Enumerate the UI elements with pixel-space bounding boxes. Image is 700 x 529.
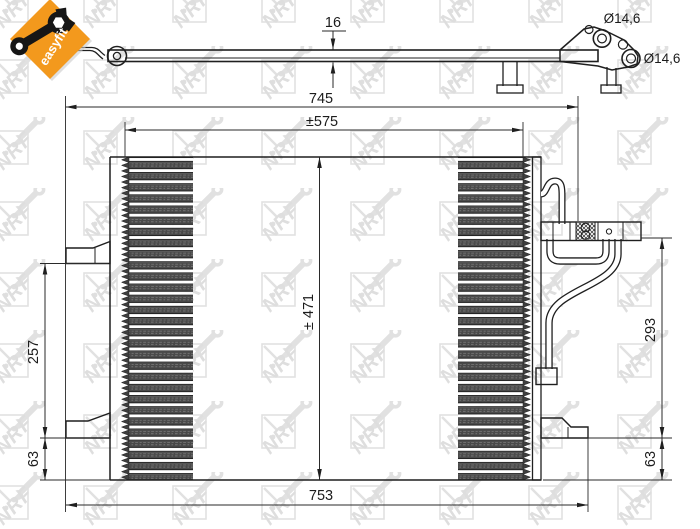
dim-label-width-overall: 745 (309, 91, 333, 107)
service-valve (577, 223, 595, 240)
dim-label-left-bottom-offset: 63 (26, 451, 42, 467)
dim-label-left-bracket-span: 257 (26, 340, 42, 364)
dim-label-width-core: ±575 (306, 114, 338, 130)
dim-label-depth: 16 (325, 15, 341, 31)
dim-label-width-bottom: 753 (309, 488, 333, 504)
core-right-hatch (458, 157, 523, 480)
dim-label-height-core: ± 471 (301, 294, 317, 330)
core-left-hatch (129, 157, 193, 480)
dim-label-port-top: Ø14,6 (604, 11, 641, 26)
technical-drawing-page: NRF (0, 0, 700, 529)
dim-label-right-bottom-offset: 63 (643, 451, 659, 467)
dim-label-port-right: Ø14,6 (644, 51, 681, 66)
dim-label-right-fitting-height: 293 (643, 318, 659, 342)
condenser-drawing: NRF (0, 0, 700, 529)
